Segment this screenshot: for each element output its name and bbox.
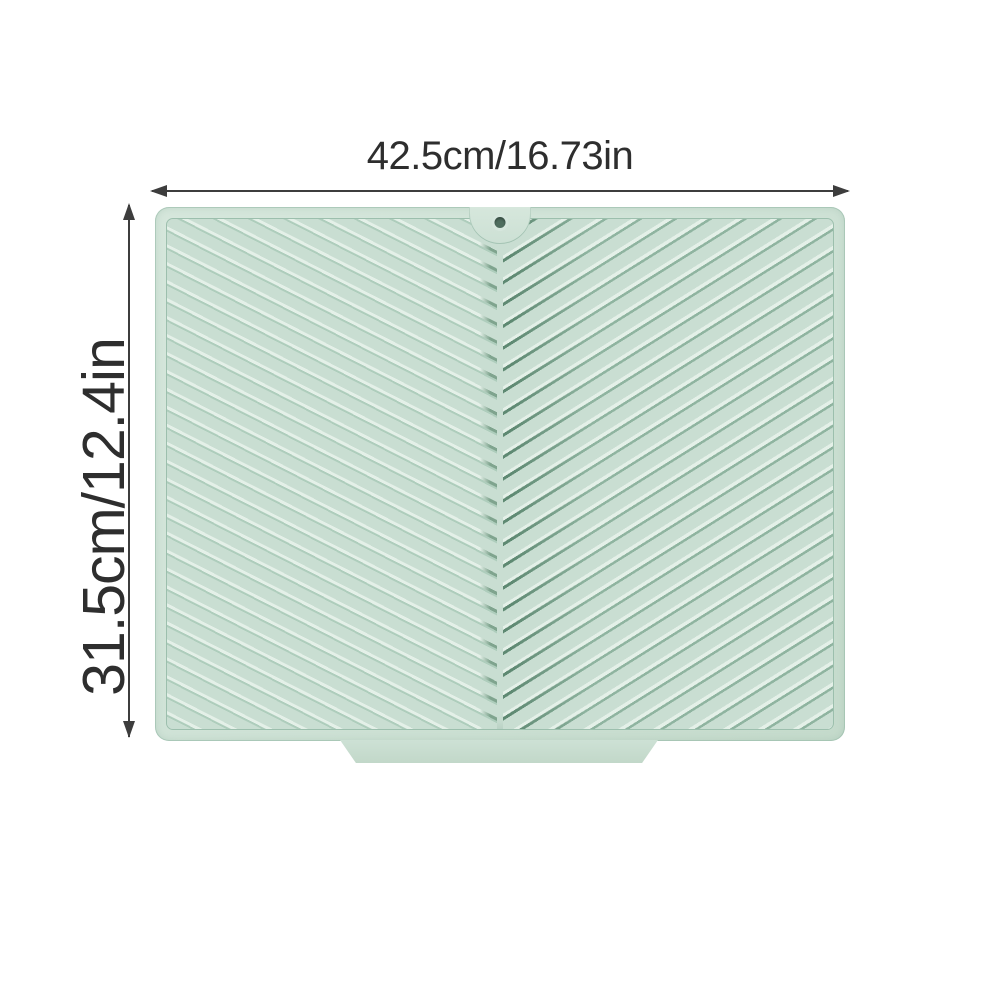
drain-spout-tab — [340, 740, 658, 763]
arrowhead-right-icon — [833, 185, 850, 197]
height-dimension-line — [128, 205, 130, 737]
mat-ridge-tips — [167, 219, 497, 729]
width-dimension-label: 42.5cm/16.73in — [0, 134, 1000, 179]
width-dimension-line — [152, 190, 848, 192]
mat-center-seam-shadow — [503, 219, 833, 729]
arrowhead-left-icon — [150, 185, 167, 197]
mat-ribbed-surface — [166, 218, 834, 730]
arrowhead-up-icon — [123, 203, 135, 220]
mat-pattern-left-herringbone — [167, 219, 497, 729]
drying-mat — [155, 207, 845, 741]
height-dimension-label: 31.5cm/12.4in — [73, 317, 135, 717]
mat-pattern-right-herringbone — [503, 219, 833, 729]
product-dimension-figure: 42.5cm/16.73in 31.5cm/12.4in — [0, 0, 1000, 1000]
arrowhead-down-icon — [123, 721, 135, 738]
hang-hole — [495, 217, 506, 228]
